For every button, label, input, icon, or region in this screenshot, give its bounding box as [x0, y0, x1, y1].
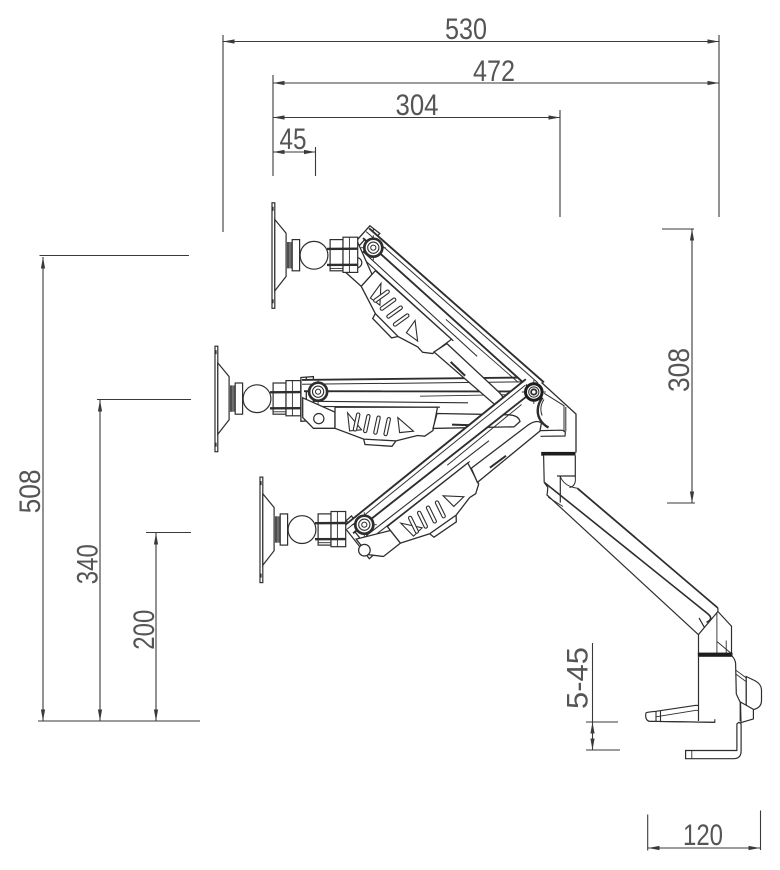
svg-text:200: 200	[128, 610, 161, 650]
svg-text:530: 530	[445, 13, 487, 46]
svg-text:304: 304	[396, 89, 439, 122]
svg-text:45: 45	[280, 123, 307, 156]
svg-text:472: 472	[473, 55, 515, 88]
svg-text:340: 340	[72, 544, 105, 584]
svg-text:308: 308	[663, 348, 696, 392]
svg-text:5-45: 5-45	[562, 647, 595, 709]
svg-text:120: 120	[683, 819, 723, 852]
svg-text:508: 508	[14, 469, 47, 513]
